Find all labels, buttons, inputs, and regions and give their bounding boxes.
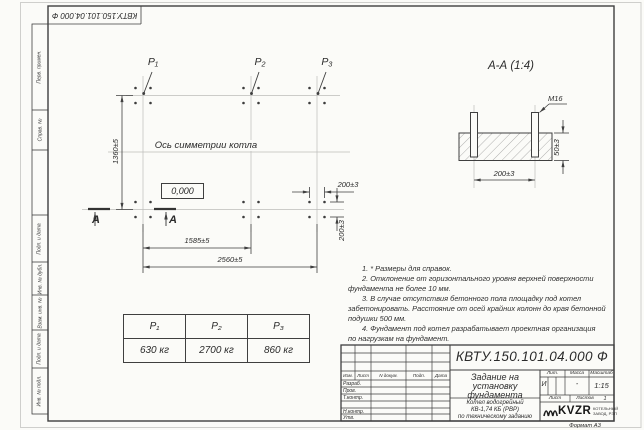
title-block-doc-number: КВТУ.150.101.04.000 Ф bbox=[452, 349, 612, 364]
margin-label-podp-data-2: Подп. и дата bbox=[32, 330, 48, 368]
load-table: P₁ P₂ P₃ 630 кг 2700 кг 860 кг bbox=[123, 314, 310, 363]
col-izm: Изм. bbox=[341, 373, 355, 378]
load-header-p2: P₂ bbox=[186, 315, 248, 339]
plan-point-label-p2: P₂ bbox=[248, 56, 272, 68]
col-list: Лист bbox=[355, 373, 371, 378]
thread-label-m16: М16 bbox=[548, 94, 563, 103]
plan-point-label-p1: P₁ bbox=[141, 56, 165, 68]
sig-utv: Утв. bbox=[343, 415, 354, 421]
format-label: Формат А3 bbox=[553, 423, 617, 429]
margin-label-inv-podl: Инв. № подл. bbox=[32, 368, 48, 414]
logo-sub-line2: ЗАВОД, РЭП bbox=[593, 411, 617, 416]
plan-leaders bbox=[143, 72, 326, 95]
product-line1: Котел водогрейный bbox=[450, 400, 540, 406]
doc-title-line3: фундамента bbox=[450, 390, 540, 400]
dim-50-section: 50±3 bbox=[540, 142, 572, 153]
product-line2: КВ-1,74 КБ (РВР) bbox=[450, 407, 540, 413]
load-value-p2: 2700 кг bbox=[186, 339, 248, 363]
sig-tkontr: Т.контр. bbox=[343, 395, 363, 401]
lit-label: Лит. bbox=[540, 371, 565, 376]
dim-1585: 1585±5 bbox=[172, 236, 222, 245]
note-line: подушки 500 мм. bbox=[348, 314, 406, 323]
note-line: 3. В случае отсутствия бетонного пола пл… bbox=[362, 294, 581, 303]
sig-prov: Пров. bbox=[343, 388, 356, 394]
note-line: забетонировать. Расстояние от осей крайн… bbox=[348, 304, 606, 313]
plan-dimensions bbox=[116, 96, 354, 274]
sig-razrab: Разраб. bbox=[343, 381, 361, 387]
mass-label: Масса bbox=[565, 371, 589, 376]
level-mark-box: 0,000 bbox=[161, 183, 204, 199]
col-podp: Подп. bbox=[406, 373, 432, 378]
lit-value: И bbox=[540, 381, 548, 388]
load-table-header-row: P₁ P₂ P₃ bbox=[124, 315, 310, 339]
margin-label-perv-primen: Перв. примен. bbox=[32, 24, 48, 110]
margin-label-podp-data-1: Подп. и дата bbox=[32, 215, 48, 262]
drawing-sheet: Перв. примен. Справ. № Подп. и дата Инв.… bbox=[0, 0, 644, 430]
dim-1360: 1360±5 bbox=[96, 146, 134, 157]
margin-label-vzam-inv: Взам. инв. № bbox=[32, 295, 48, 330]
section-title: А-А (1:4) bbox=[466, 60, 556, 72]
dim-200-plan-horizontal: 200±3 bbox=[328, 180, 368, 189]
load-value-p3: 860 кг bbox=[248, 339, 310, 363]
sheet-label: Лист bbox=[540, 396, 570, 401]
col-data: Дата bbox=[432, 373, 450, 378]
product-line3: по техническому заданию bbox=[450, 414, 540, 420]
note-line: фундамента не более 10 мм. bbox=[348, 284, 451, 293]
load-table-value-row: 630 кг 2700 кг 860 кг bbox=[124, 339, 310, 363]
sheets-value: 1 bbox=[598, 396, 612, 402]
note-line: по нагрузкам на фундамент. bbox=[348, 334, 449, 343]
sheets-label: Листов bbox=[571, 396, 599, 401]
logo-spring-icon bbox=[544, 411, 557, 416]
doc-number-stamp-rotated: КВТУ.150.101.04.000 Ф bbox=[48, 6, 141, 24]
scale-label: Масштаб bbox=[589, 371, 614, 376]
load-header-p1: P₁ bbox=[124, 315, 186, 339]
section-letter-left: А bbox=[89, 214, 103, 226]
load-value-p1: 630 кг bbox=[124, 339, 186, 363]
dim-200-section: 200±3 bbox=[480, 169, 528, 178]
note-line: 4. Фундамент под котел разрабатывает про… bbox=[362, 324, 595, 333]
load-header-p3: P₃ bbox=[248, 315, 310, 339]
scale-value: 1:15 bbox=[589, 381, 614, 390]
dim-200-plan-vertical: 200±3 bbox=[324, 224, 358, 236]
margin-label-sprav-no: Справ. № bbox=[32, 110, 48, 150]
dim-2560: 2560±5 bbox=[205, 255, 255, 264]
logo-kvzr-text: KVZR bbox=[558, 405, 591, 417]
section-letter-right: А bbox=[166, 214, 180, 226]
boiler-symmetry-axis-label: Ось симметрии котла bbox=[147, 140, 265, 151]
note-line: 2. Отклонение от горизонтального уровня … bbox=[362, 274, 593, 283]
plan-point-label-p3: P₃ bbox=[315, 56, 339, 68]
mass-value: - bbox=[565, 381, 589, 388]
col-n-dokum: N докум. bbox=[371, 373, 406, 378]
note-line: 1. * Размеры для справок. bbox=[362, 264, 452, 273]
margin-label-inv-dubl: Инв. № дубл. bbox=[32, 262, 48, 295]
